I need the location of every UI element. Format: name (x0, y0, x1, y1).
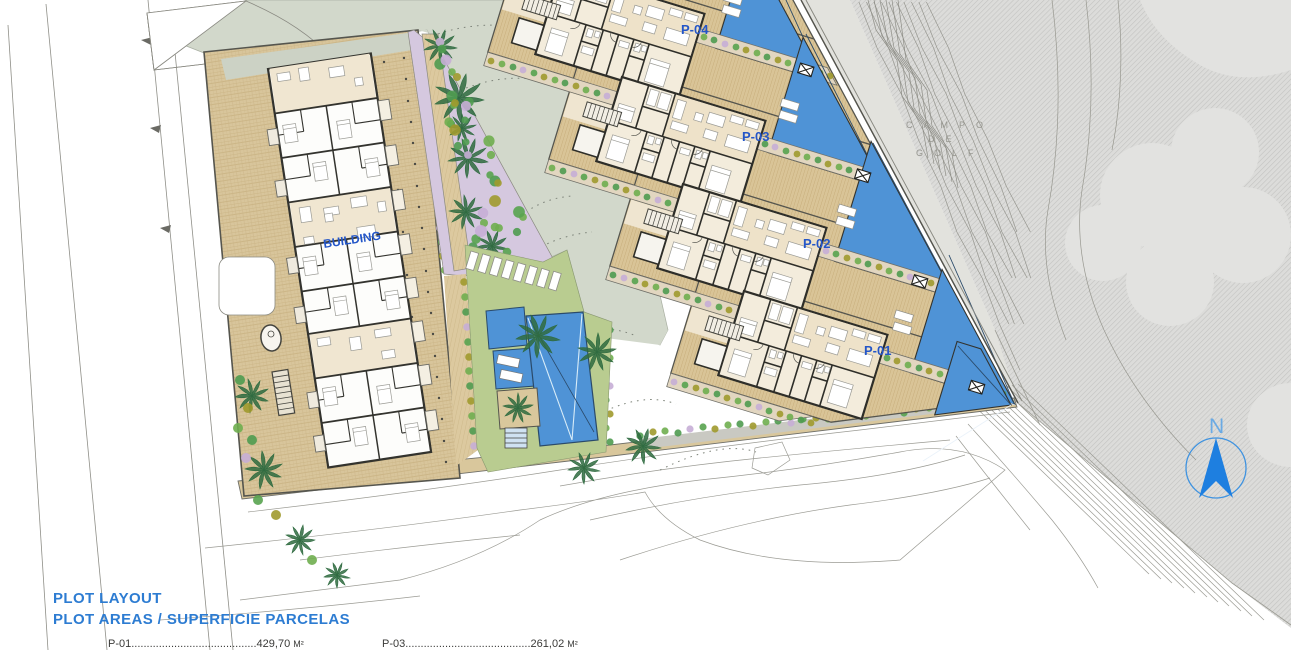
svg-text:P-02: P-02 (803, 236, 830, 251)
svg-text:PLOT AREAS / SUPERFICIE PARCEL: PLOT AREAS / SUPERFICIE PARCELAS (53, 611, 350, 628)
svg-text:DE: DE (928, 134, 963, 144)
svg-text:P-01..........................: P-01....................................… (108, 638, 304, 650)
svg-text:P-01: P-01 (864, 343, 891, 358)
svg-text:P-03..........................: P-03....................................… (382, 638, 578, 650)
svg-text:P-04: P-04 (681, 22, 709, 37)
svg-text:CAMPO: CAMPO (906, 120, 994, 130)
svg-text:P-03: P-03 (742, 129, 769, 144)
svg-text:PLOT LAYOUT: PLOT LAYOUT (53, 590, 162, 607)
svg-text:GOLF: GOLF (916, 148, 985, 158)
svg-text:N: N (1209, 415, 1224, 438)
